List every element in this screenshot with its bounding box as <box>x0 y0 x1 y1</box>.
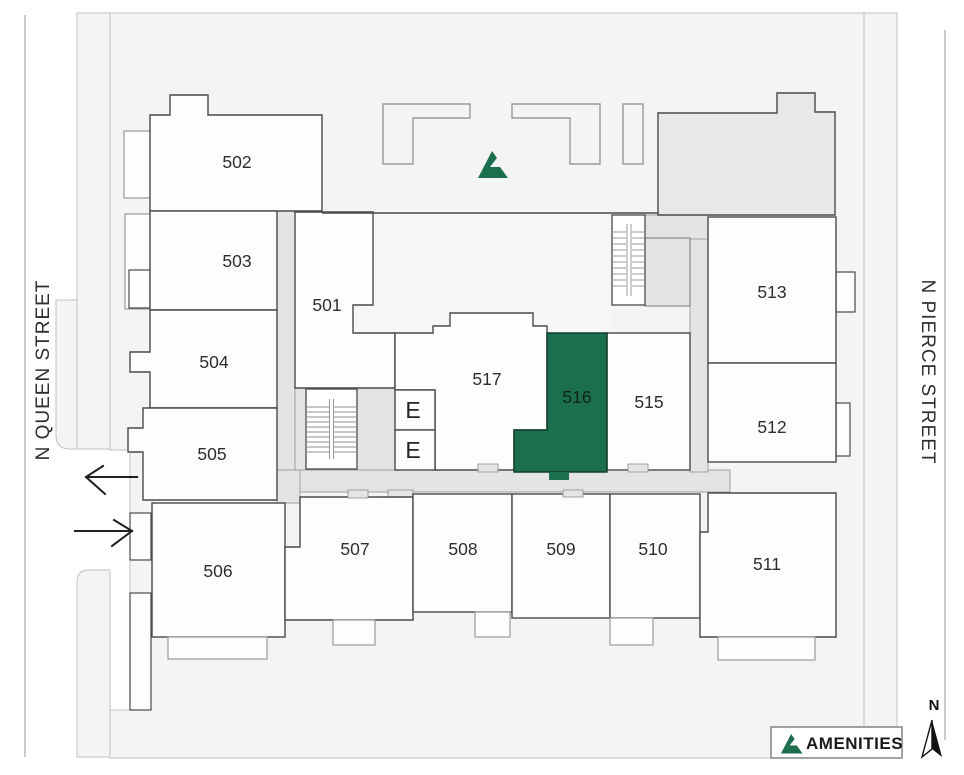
unit-label-505: 505 <box>197 444 226 464</box>
compass-needle-left <box>922 720 932 757</box>
unit-label-517: 517 <box>472 369 501 389</box>
unit-label-512: 512 <box>757 417 786 437</box>
site-plan-page: 501 502 503 504 505 506 507 508 509 510 … <box>0 0 964 775</box>
elevator-label-1: E <box>405 397 420 423</box>
compass-label: N <box>929 697 940 714</box>
unit-label-508: 508 <box>448 539 477 559</box>
right-sidewalk <box>864 13 897 757</box>
unit-label-510: 510 <box>638 539 667 559</box>
corridor-east-room <box>645 238 690 306</box>
unit-label-511: 511 <box>753 554 781 574</box>
unit-label-507: 507 <box>340 539 369 559</box>
unit-label-509: 509 <box>546 539 575 559</box>
corridor-main <box>277 470 730 492</box>
left-sidewalk-flare <box>56 300 77 449</box>
unit-label-502: 502 <box>222 152 251 172</box>
unit-512[interactable] <box>708 363 836 462</box>
bay-506-upper <box>130 513 151 560</box>
balcony-513 <box>836 272 855 312</box>
balcony-502 <box>124 131 150 198</box>
corridor-east <box>690 215 708 472</box>
unit-label-506: 506 <box>203 561 232 581</box>
compass-needle-right <box>932 720 942 757</box>
balcony-510 <box>610 618 653 645</box>
balcony-512 <box>836 403 850 456</box>
left-sidewalk-upper <box>77 13 110 449</box>
unit-label-516: 516 <box>562 387 591 407</box>
amenities-legend: AMENITIES <box>771 727 903 758</box>
stairs-north <box>612 215 645 305</box>
unit-label-501: 501 <box>312 295 341 315</box>
courtyard-planter-stub <box>623 104 643 164</box>
stairs-west <box>306 389 357 469</box>
left-sidewalk-lower <box>77 570 110 757</box>
legend-label: AMENITIES <box>806 734 903 753</box>
traffic-arrow-left <box>86 466 137 494</box>
balcony-506 <box>168 637 267 659</box>
unit-label-504: 504 <box>199 352 228 372</box>
unit-label-513: 513 <box>757 282 786 302</box>
unit-label-503: 503 <box>222 251 251 271</box>
elevator-label-2: E <box>405 437 420 463</box>
door-tab <box>478 464 498 472</box>
unit-label-515: 515 <box>634 392 663 412</box>
corridor-north-east <box>645 215 708 239</box>
street-label-pierce: N PIERCE STREET <box>917 280 938 465</box>
balcony-508 <box>475 612 510 637</box>
door-tab <box>348 490 368 498</box>
traffic-arrow-right <box>75 520 132 546</box>
door-tab <box>563 490 583 497</box>
bay-503 <box>129 270 150 308</box>
corridor-west <box>277 211 295 472</box>
unit-516-entry-tab <box>549 472 569 480</box>
street-label-queen: N QUEEN STREET <box>33 280 54 461</box>
unit-503[interactable] <box>150 211 277 310</box>
balcony-511 <box>718 637 815 660</box>
bay-506-lower <box>130 593 151 710</box>
site-plan-map: 501 502 503 504 505 506 507 508 509 510 … <box>0 0 964 775</box>
corridor-main-west-step <box>277 470 300 503</box>
north-compass: N <box>922 697 942 757</box>
door-tab <box>628 464 648 472</box>
balcony-507 <box>333 620 375 645</box>
